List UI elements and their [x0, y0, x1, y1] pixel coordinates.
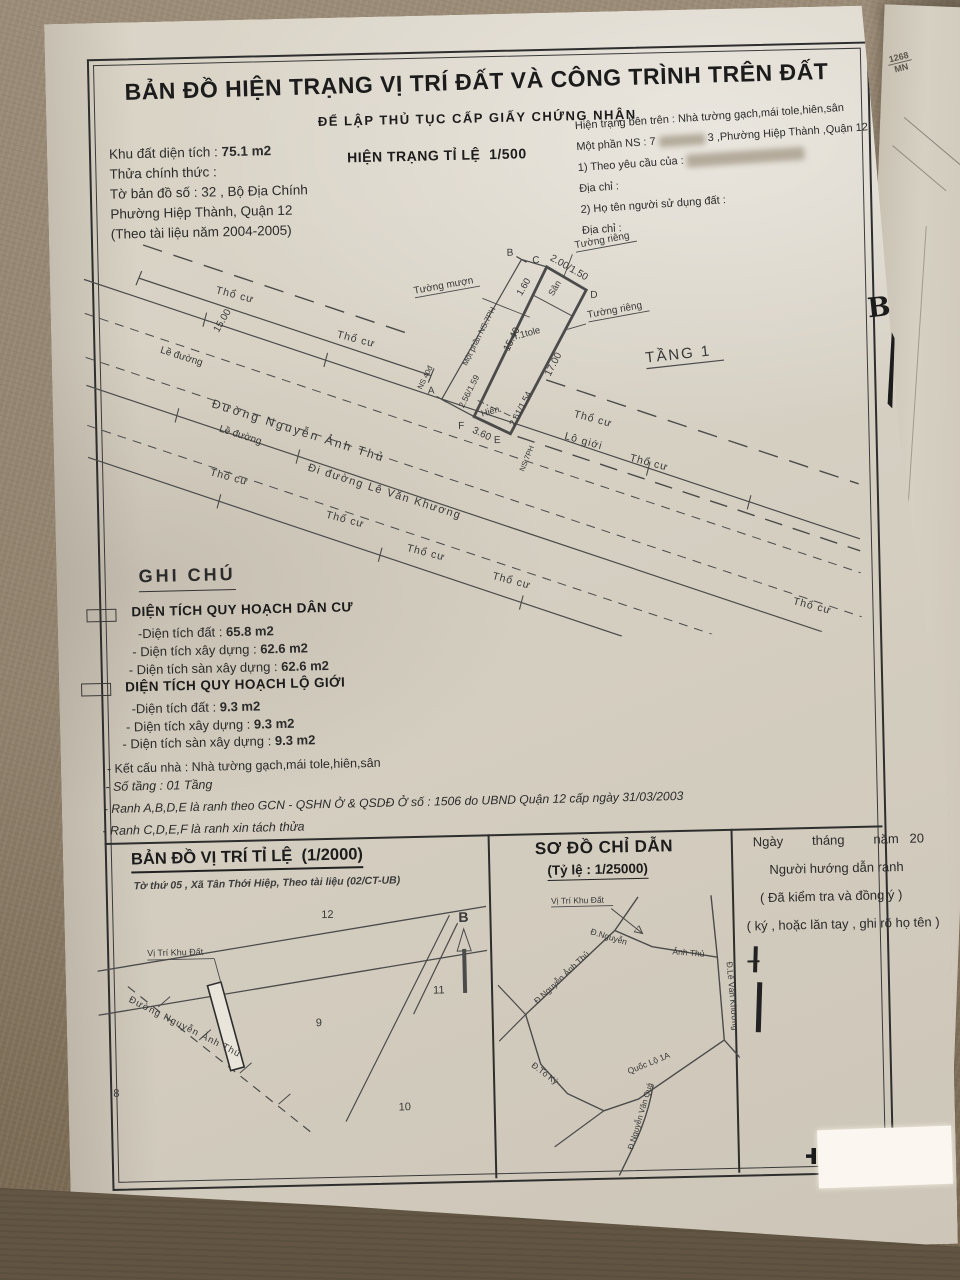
road-name-label: Đ.Nguyễn Ảnh Thủ: [531, 948, 591, 1006]
guide-map-title: SƠ ĐỒ CHỈ DẪN: [535, 836, 674, 859]
north-arrow-icon: B: [456, 909, 472, 993]
survey-request-block: Hiện trạng bên trên : Nhà tường gạch,mái…: [574, 94, 902, 241]
legend-swatch-dan-cu: [86, 609, 116, 623]
legend-row: -Diện tích đất : 9.3 m2: [131, 698, 260, 716]
boundary-dashed: [143, 239, 415, 342]
point-label: C: [532, 255, 539, 266]
tang1-label: TẦNG 1: [644, 341, 724, 368]
point-label: B: [507, 248, 514, 259]
svg-text:Tường riêng: Tường riêng: [586, 300, 643, 321]
hien-label: Hiên: [480, 404, 500, 419]
tuong-rieng-label: Tường riêng: [586, 299, 649, 322]
house-line: [533, 294, 572, 317]
svg-text:Tường riêng: Tường riêng: [574, 230, 631, 251]
guide-map: Vị Trí Khu Đất Đ.Nguyễn Ảnh Thủ Đ.Nguyễn…: [493, 890, 742, 1180]
tuong-rieng-label: Tường riêng: [574, 229, 637, 252]
point-label: F: [458, 421, 464, 432]
tuong-muon-label: Tường mượn: [413, 274, 480, 298]
tho-cu-label: Thổ cư: [792, 595, 833, 617]
road-line: [711, 895, 724, 1040]
behind-page-fold-line: [892, 145, 946, 191]
tho-cu-label: Thổ cư: [491, 570, 532, 592]
parcel-number: 8: [113, 1088, 119, 1100]
north-shaft: [887, 332, 894, 408]
lo-gioi-label: Lộ giới: [563, 430, 604, 452]
plot-label: Vị Trí Khu Đất: [551, 895, 605, 906]
guide-map-scale: (Tỷ lệ : 1/25000): [547, 861, 648, 881]
point-label: A: [428, 385, 435, 396]
road-name-label: Ảnh Thủ: [672, 945, 705, 959]
parcel-number: 10: [399, 1101, 412, 1113]
le-duong-label: Lề đường: [218, 423, 263, 448]
road-name-label: Đ.Nguyễn Văn Quá: [626, 1081, 655, 1151]
north-mark-icon: [747, 960, 759, 962]
request-by-label: 1) Theo yêu cầu của :: [577, 155, 684, 174]
tho-cu-label: Thổ cư: [209, 466, 250, 488]
road-name-label: Quốc Lộ 1A: [626, 1050, 672, 1076]
plot-label: Vị Trí Khu Đất: [147, 947, 204, 958]
boundary-dashed: [546, 373, 858, 491]
legend-title: GHI CHÚ: [138, 564, 236, 592]
measure-label: 2.61/1.54: [507, 390, 533, 428]
measure-label: 15.00: [212, 307, 234, 335]
area-label: Khu đất diện tích :: [109, 144, 218, 161]
redaction-blur: [686, 146, 805, 167]
ns-label: Một phần NS:7PH: [461, 305, 498, 367]
tho-cu-label: Thổ cư: [336, 329, 377, 351]
point-label: D: [590, 290, 597, 301]
redaction-blur: [658, 133, 705, 147]
ns-label: NS:7PH: [517, 444, 536, 472]
parcel-number: 9: [316, 1017, 322, 1029]
parcel-number: 11: [433, 984, 445, 996]
san-label: Sân: [546, 279, 563, 298]
measure-label: 1.60: [515, 276, 534, 298]
tho-cu-label: Thổ cư: [405, 542, 446, 564]
road-name-label: Đ.Tô Ký: [530, 1060, 561, 1087]
ns-line: Một phần NS : 7: [576, 136, 656, 153]
redaction-patch: [817, 1126, 953, 1189]
road-line: [498, 985, 526, 1016]
north-letter: B: [866, 291, 892, 324]
tho-cu-label: Thổ cư: [628, 452, 669, 474]
cross-road: [341, 915, 454, 1121]
tho-cu-label: Thổ cư: [215, 284, 256, 306]
legend-row: -Diện tích đất : 65.8 m2: [138, 623, 274, 641]
tho-cu-label: Thổ cư: [572, 408, 613, 430]
area-value: 75.1 m2: [221, 143, 271, 159]
measure-label: 2.56/1.59: [456, 373, 481, 409]
document-paper: BẢN ĐỒ HIỆN TRẠNG VỊ TRÍ ĐẤT VÀ CÔNG TRÌ…: [44, 4, 958, 1264]
legend-swatch-lo-gioi: [81, 683, 111, 697]
road-line: [554, 1111, 605, 1147]
lo-gioi-line: [518, 429, 861, 559]
behind-page-fold-line: [904, 117, 960, 177]
cross-road: [412, 923, 460, 1014]
note-line: - Số tầng : 01 Tầng: [105, 778, 212, 794]
measure-label: 3.60: [470, 425, 493, 444]
le-duong-label: Lề đường: [159, 344, 204, 369]
road-name-label: Đ.Nguyễn: [589, 926, 628, 947]
point-label: E: [494, 435, 501, 446]
parcel-number: 12: [321, 909, 334, 921]
photo-scene: BẢN ĐỒ HIỆN TRẠNG VỊ TRÍ ĐẤT VÀ CÔNG TRÌ…: [0, 0, 960, 1280]
svg-text:Tường mượn: Tường mượn: [413, 275, 474, 297]
road-line: [499, 1015, 527, 1042]
road-line: [96, 906, 487, 971]
location-map: Vị Trí Khu Đất Đường Nguyễn Ảnh Thủ 12 1…: [96, 895, 492, 1176]
svg-text:B: B: [458, 909, 468, 925]
